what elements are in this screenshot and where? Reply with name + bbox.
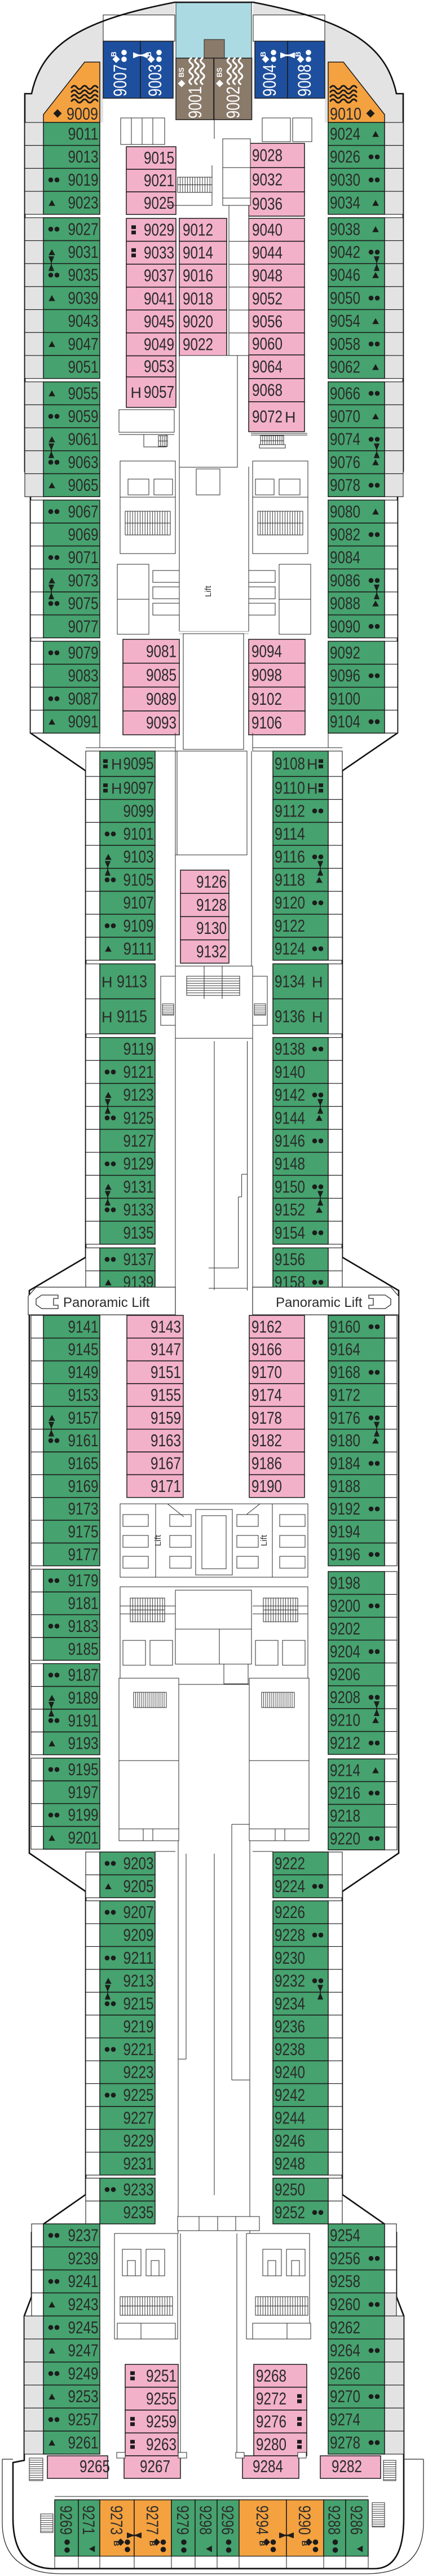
svg-text:9150: 9150 (275, 1177, 305, 1196)
svg-text:9011: 9011 (68, 124, 99, 144)
svg-text:9137: 9137 (123, 1249, 154, 1269)
svg-text:B: B (112, 2540, 121, 2546)
svg-text:9270: 9270 (330, 2386, 360, 2406)
svg-text:9165: 9165 (68, 1454, 99, 1473)
svg-text:9118: 9118 (275, 870, 305, 889)
svg-text:9103: 9103 (123, 847, 154, 867)
svg-text:9260: 9260 (330, 2294, 360, 2314)
svg-text:9161: 9161 (68, 1430, 99, 1450)
svg-text:9095: 9095 (123, 754, 154, 774)
svg-text:9008: 9008 (294, 64, 315, 96)
svg-text:9026: 9026 (330, 147, 360, 166)
svg-text:9098: 9098 (251, 665, 282, 685)
svg-text:9226: 9226 (275, 1902, 305, 1922)
svg-text:9273: 9273 (107, 2505, 126, 2535)
svg-text:9261: 9261 (68, 2433, 99, 2452)
svg-text:9144: 9144 (275, 1108, 305, 1127)
svg-text:9266: 9266 (330, 2363, 360, 2383)
svg-text:9164: 9164 (330, 1340, 360, 1359)
svg-text:9203: 9203 (123, 1853, 154, 1873)
svg-text:9259: 9259 (146, 2411, 177, 2431)
svg-text:9085: 9085 (146, 665, 177, 685)
svg-text:9167: 9167 (151, 1454, 181, 1473)
svg-text:H: H (307, 780, 318, 797)
svg-text:BS: BS (216, 68, 224, 77)
svg-text:9046: 9046 (330, 265, 360, 285)
svg-text:9028: 9028 (252, 146, 283, 165)
svg-text:9253: 9253 (68, 2386, 99, 2406)
svg-text:9047: 9047 (68, 334, 99, 354)
svg-text:9039: 9039 (68, 288, 99, 308)
svg-text:9181: 9181 (68, 1594, 99, 1613)
svg-text:9250: 9250 (275, 2179, 305, 2199)
svg-text:B: B (148, 2540, 157, 2546)
svg-text:9186: 9186 (251, 1454, 282, 1473)
svg-text:9138: 9138 (275, 1039, 305, 1059)
svg-text:9248: 9248 (275, 2153, 305, 2173)
svg-text:9025: 9025 (144, 193, 174, 213)
svg-text:9057: 9057 (144, 382, 174, 402)
svg-text:H: H (102, 1008, 113, 1025)
svg-text:9212: 9212 (330, 1733, 360, 1753)
svg-text:9119: 9119 (123, 1039, 154, 1059)
svg-text:9033: 9033 (144, 243, 174, 262)
svg-text:9207: 9207 (123, 1902, 154, 1922)
svg-text:9179: 9179 (68, 1570, 99, 1590)
svg-text:9113: 9113 (117, 971, 147, 991)
svg-text:9106: 9106 (251, 713, 282, 732)
svg-text:9135: 9135 (123, 1223, 154, 1243)
svg-text:9173: 9173 (68, 1499, 99, 1519)
svg-text:9086: 9086 (330, 571, 360, 590)
svg-text:9279: 9279 (173, 2505, 192, 2535)
svg-text:9239: 9239 (68, 2248, 99, 2268)
svg-text:9280: 9280 (256, 2434, 286, 2454)
svg-text:9035: 9035 (68, 265, 99, 285)
svg-text:9123: 9123 (123, 1085, 154, 1105)
svg-text:9264: 9264 (330, 2341, 360, 2360)
svg-text:9246: 9246 (275, 2131, 305, 2151)
svg-text:9205: 9205 (123, 1876, 154, 1896)
svg-text:9265: 9265 (80, 2456, 110, 2476)
svg-text:9194: 9194 (330, 1522, 360, 1542)
svg-text:9066: 9066 (330, 383, 360, 403)
svg-text:9191: 9191 (68, 1710, 99, 1730)
svg-text:9029: 9029 (144, 220, 174, 240)
svg-text:9232: 9232 (275, 1971, 305, 1990)
svg-text:9154: 9154 (275, 1223, 305, 1243)
svg-text:9171: 9171 (151, 1476, 181, 1496)
svg-text:9068: 9068 (252, 380, 283, 400)
svg-text:9084: 9084 (330, 547, 360, 567)
svg-text:9050: 9050 (330, 288, 360, 308)
svg-text:9214: 9214 (330, 1760, 360, 1780)
svg-text:H: H (285, 409, 296, 426)
svg-text:H: H (312, 1008, 323, 1025)
svg-text:9152: 9152 (275, 1200, 305, 1219)
svg-text:9014: 9014 (183, 243, 213, 262)
svg-text:9002: 9002 (223, 86, 244, 119)
svg-text:9278: 9278 (330, 2433, 360, 2452)
svg-text:9143: 9143 (151, 1316, 181, 1336)
svg-text:9272: 9272 (256, 2389, 286, 2408)
svg-text:9271: 9271 (79, 2505, 98, 2535)
svg-text:9122: 9122 (275, 916, 305, 936)
svg-text:9063: 9063 (68, 452, 99, 472)
svg-text:9096: 9096 (330, 666, 360, 686)
svg-text:9082: 9082 (330, 525, 360, 545)
svg-text:9206: 9206 (330, 1664, 360, 1684)
svg-text:9009: 9009 (67, 104, 98, 124)
svg-text:9081: 9081 (146, 641, 177, 661)
svg-text:9189: 9189 (68, 1688, 99, 1708)
svg-text:Panoramic Lift: Panoramic Lift (276, 1295, 363, 1310)
svg-text:9148: 9148 (275, 1154, 305, 1174)
svg-text:9041: 9041 (144, 288, 174, 308)
svg-text:9219: 9219 (123, 2016, 154, 2036)
svg-text:9142: 9142 (275, 1085, 305, 1105)
svg-text:9071: 9071 (68, 547, 99, 567)
svg-text:9140: 9140 (275, 1062, 305, 1082)
svg-text:9268: 9268 (256, 2366, 286, 2385)
svg-text:9010: 9010 (330, 104, 361, 124)
svg-text:9045: 9045 (144, 311, 174, 331)
svg-text:9049: 9049 (144, 335, 174, 354)
svg-text:9160: 9160 (330, 1316, 360, 1336)
svg-text:9262: 9262 (330, 2318, 360, 2337)
svg-text:9089: 9089 (146, 689, 177, 709)
svg-text:9074: 9074 (330, 429, 360, 449)
svg-text:9218: 9218 (330, 1806, 360, 1825)
svg-text:9136: 9136 (275, 1006, 305, 1026)
svg-text:9257: 9257 (68, 2410, 99, 2429)
svg-text:9070: 9070 (330, 406, 360, 426)
svg-text:9060: 9060 (252, 334, 283, 354)
svg-text:9110: 9110 (275, 778, 305, 798)
svg-text:9061: 9061 (68, 429, 99, 449)
svg-text:9034: 9034 (330, 193, 360, 213)
svg-text:9128: 9128 (196, 895, 227, 915)
svg-text:9198: 9198 (330, 1573, 360, 1592)
svg-text:9251: 9251 (146, 2366, 177, 2385)
svg-text:9015: 9015 (144, 148, 174, 168)
svg-text:Lift: Lift (153, 1534, 163, 1546)
svg-text:9078: 9078 (330, 475, 360, 495)
svg-text:9019: 9019 (68, 170, 99, 190)
svg-text:9067: 9067 (68, 502, 99, 521)
svg-text:9116: 9116 (275, 847, 305, 867)
svg-text:9209: 9209 (123, 1925, 154, 1945)
svg-text:9043: 9043 (68, 311, 99, 331)
svg-text:9296: 9296 (218, 2505, 237, 2535)
svg-text:9235: 9235 (123, 2202, 154, 2222)
svg-text:H: H (111, 756, 122, 773)
svg-text:Panoramic Lift: Panoramic Lift (63, 1295, 150, 1310)
svg-text:9228: 9228 (275, 1925, 305, 1945)
svg-text:9244: 9244 (275, 2108, 305, 2127)
svg-text:9230: 9230 (275, 1948, 305, 1968)
svg-text:9054: 9054 (330, 311, 360, 331)
svg-text:9044: 9044 (252, 243, 283, 262)
svg-text:9126: 9126 (196, 872, 227, 892)
svg-text:9169: 9169 (68, 1476, 99, 1496)
svg-text:9134: 9134 (275, 971, 305, 991)
svg-text:9263: 9263 (146, 2434, 177, 2454)
svg-text:9120: 9120 (275, 893, 305, 912)
svg-text:9004: 9004 (259, 64, 280, 96)
svg-text:9245: 9245 (68, 2318, 99, 2337)
svg-text:9147: 9147 (151, 1340, 181, 1359)
svg-text:9175: 9175 (68, 1522, 99, 1542)
svg-text:9083: 9083 (68, 666, 99, 686)
svg-text:9274: 9274 (330, 2410, 360, 2429)
svg-text:9132: 9132 (196, 941, 227, 961)
svg-text:9001: 9001 (185, 86, 205, 119)
svg-text:9076: 9076 (330, 452, 360, 472)
svg-text:9193: 9193 (68, 1734, 99, 1753)
svg-text:9229: 9229 (123, 2131, 154, 2151)
svg-text:9065: 9065 (68, 475, 99, 495)
svg-text:9027: 9027 (68, 219, 99, 239)
svg-text:9111: 9111 (123, 939, 154, 959)
svg-text:9062: 9062 (330, 357, 360, 377)
svg-text:9170: 9170 (251, 1362, 282, 1382)
svg-text:9225: 9225 (123, 2085, 154, 2105)
svg-text:9107: 9107 (123, 893, 154, 912)
svg-text:9030: 9030 (330, 170, 360, 190)
svg-text:9156: 9156 (275, 1249, 305, 1269)
svg-text:9238: 9238 (275, 2039, 305, 2059)
svg-text:9258: 9258 (330, 2271, 360, 2291)
svg-text:9121: 9121 (123, 1062, 154, 1082)
svg-text:9176: 9176 (330, 1408, 360, 1428)
svg-text:9223: 9223 (123, 2062, 154, 2082)
svg-text:9077: 9077 (68, 616, 99, 636)
svg-text:9141: 9141 (68, 1316, 99, 1336)
svg-text:9105: 9105 (123, 870, 154, 889)
svg-text:9080: 9080 (330, 502, 360, 521)
svg-text:9195: 9195 (68, 1759, 99, 1779)
svg-text:BS: BS (178, 68, 186, 77)
svg-text:9282: 9282 (332, 2456, 362, 2476)
svg-text:9182: 9182 (251, 1430, 282, 1450)
svg-text:9163: 9163 (151, 1430, 181, 1450)
svg-text:9162: 9162 (251, 1316, 282, 1336)
svg-text:9227: 9227 (123, 2108, 154, 2127)
svg-text:9208: 9208 (330, 1687, 360, 1707)
svg-text:9020: 9020 (183, 311, 213, 331)
svg-text:9069: 9069 (68, 525, 99, 545)
svg-text:9231: 9231 (123, 2153, 154, 2173)
svg-text:9233: 9233 (123, 2179, 154, 2199)
svg-text:H: H (307, 756, 318, 773)
svg-text:9153: 9153 (68, 1385, 99, 1405)
svg-text:9151: 9151 (151, 1362, 181, 1382)
svg-text:9288: 9288 (325, 2505, 343, 2535)
svg-text:9224: 9224 (275, 1876, 305, 1896)
svg-text:B: B (301, 2540, 310, 2546)
svg-text:9286: 9286 (347, 2505, 365, 2535)
svg-text:B: B (258, 2540, 267, 2546)
svg-text:9003: 9003 (145, 64, 165, 96)
svg-text:9072: 9072 (252, 407, 283, 427)
svg-text:9099: 9099 (123, 801, 154, 820)
svg-text:H: H (312, 973, 323, 990)
svg-text:9088: 9088 (330, 594, 360, 613)
svg-text:9197: 9197 (68, 1782, 99, 1802)
svg-text:9155: 9155 (151, 1385, 181, 1405)
svg-text:9192: 9192 (330, 1499, 360, 1519)
svg-text:9249: 9249 (68, 2363, 99, 2383)
svg-text:9201: 9201 (68, 1828, 99, 1847)
svg-text:9051: 9051 (68, 357, 99, 377)
svg-text:9196: 9196 (330, 1544, 360, 1564)
svg-text:9037: 9037 (144, 266, 174, 286)
svg-text:9023: 9023 (68, 193, 99, 213)
svg-text:9114: 9114 (275, 824, 305, 844)
svg-text:9079: 9079 (68, 643, 99, 662)
svg-text:9183: 9183 (68, 1616, 99, 1636)
svg-text:9093: 9093 (146, 713, 177, 732)
svg-text:9048: 9048 (252, 266, 283, 286)
svg-text:9012: 9012 (183, 220, 213, 240)
svg-text:9221: 9221 (123, 2039, 154, 2059)
svg-text:9202: 9202 (330, 1618, 360, 1638)
svg-text:9254: 9254 (330, 2226, 360, 2245)
svg-text:H: H (131, 384, 142, 401)
svg-text:9133: 9133 (123, 1200, 154, 1219)
svg-text:9059: 9059 (68, 406, 99, 426)
svg-text:9130: 9130 (196, 918, 227, 938)
svg-text:9131: 9131 (123, 1177, 154, 1196)
svg-text:9241: 9241 (68, 2271, 99, 2291)
svg-text:9092: 9092 (330, 643, 360, 662)
svg-text:9276: 9276 (256, 2411, 286, 2431)
svg-text:9247: 9247 (68, 2341, 99, 2360)
svg-text:9042: 9042 (330, 242, 360, 262)
svg-text:9166: 9166 (251, 1340, 282, 1359)
svg-text:9236: 9236 (275, 2016, 305, 2036)
svg-text:9178: 9178 (251, 1408, 282, 1428)
svg-text:9146: 9146 (275, 1131, 305, 1151)
svg-text:9032: 9032 (252, 170, 283, 190)
svg-text:9149: 9149 (68, 1362, 99, 1382)
svg-text:9055: 9055 (68, 383, 99, 403)
svg-text:9040: 9040 (252, 220, 283, 240)
svg-text:9112: 9112 (275, 801, 305, 820)
svg-text:9109: 9109 (123, 916, 154, 936)
svg-text:9220: 9220 (330, 1828, 360, 1848)
svg-text:H: H (111, 780, 122, 797)
svg-text:9290: 9290 (295, 2505, 314, 2535)
svg-text:9210: 9210 (330, 1710, 360, 1730)
svg-text:9124: 9124 (275, 939, 305, 959)
svg-text:9064: 9064 (252, 357, 283, 376)
svg-text:9052: 9052 (252, 288, 283, 308)
svg-text:9252: 9252 (275, 2202, 305, 2222)
svg-text:9294: 9294 (253, 2505, 271, 2535)
svg-text:9102: 9102 (251, 689, 282, 709)
svg-text:9188: 9188 (330, 1476, 360, 1496)
svg-text:9075: 9075 (68, 594, 99, 613)
svg-text:9200: 9200 (330, 1596, 360, 1616)
svg-text:9125: 9125 (123, 1108, 154, 1127)
svg-text:9087: 9087 (68, 688, 99, 708)
svg-text:9021: 9021 (144, 170, 174, 190)
svg-text:9031: 9031 (68, 242, 99, 262)
svg-text:9129: 9129 (123, 1154, 154, 1174)
svg-text:9091: 9091 (68, 712, 99, 731)
svg-text:9222: 9222 (275, 1853, 305, 1873)
svg-text:9159: 9159 (151, 1408, 181, 1428)
svg-text:9216: 9216 (330, 1783, 360, 1803)
svg-text:9090: 9090 (330, 616, 360, 636)
svg-text:9174: 9174 (251, 1385, 282, 1405)
svg-text:9172: 9172 (330, 1385, 360, 1405)
svg-text:9022: 9022 (183, 335, 213, 354)
svg-text:9024: 9024 (330, 124, 360, 144)
svg-text:9097: 9097 (123, 778, 154, 798)
svg-text:9056: 9056 (252, 311, 283, 331)
svg-text:9284: 9284 (253, 2456, 283, 2476)
svg-text:9018: 9018 (183, 288, 213, 308)
svg-text:9058: 9058 (330, 334, 360, 354)
svg-text:9180: 9180 (330, 1430, 360, 1450)
svg-text:9007: 9007 (110, 64, 130, 96)
svg-text:9234: 9234 (275, 1994, 305, 2013)
svg-text:9073: 9073 (68, 571, 99, 590)
svg-text:9277: 9277 (143, 2505, 161, 2535)
svg-text:9053: 9053 (144, 357, 174, 376)
svg-text:9036: 9036 (252, 194, 283, 214)
svg-text:9108: 9108 (275, 754, 305, 774)
svg-text:9237: 9237 (68, 2226, 99, 2245)
svg-text:9157: 9157 (68, 1408, 99, 1428)
svg-text:9256: 9256 (330, 2248, 360, 2268)
svg-text:9298: 9298 (196, 2505, 215, 2535)
svg-text:H: H (102, 973, 113, 990)
svg-text:9204: 9204 (330, 1642, 360, 1661)
svg-text:9267: 9267 (140, 2456, 170, 2476)
svg-text:9213: 9213 (123, 1971, 154, 1990)
svg-text:9215: 9215 (123, 1994, 154, 2013)
svg-text:9115: 9115 (117, 1006, 147, 1026)
svg-text:Lift: Lift (259, 1534, 269, 1546)
svg-text:9038: 9038 (330, 219, 360, 239)
svg-text:9168: 9168 (330, 1362, 360, 1382)
svg-text:9255: 9255 (146, 2389, 177, 2408)
svg-text:9100: 9100 (330, 688, 360, 708)
svg-text:9240: 9240 (275, 2062, 305, 2082)
svg-text:9184: 9184 (330, 1454, 360, 1473)
svg-text:9190: 9190 (251, 1476, 282, 1496)
svg-text:9269: 9269 (56, 2505, 75, 2535)
svg-text:9211: 9211 (123, 1948, 154, 1968)
svg-text:9013: 9013 (68, 147, 99, 166)
svg-text:9016: 9016 (183, 266, 213, 286)
svg-text:9243: 9243 (68, 2294, 99, 2314)
svg-text:9199: 9199 (68, 1805, 99, 1825)
svg-text:9145: 9145 (68, 1340, 99, 1359)
svg-text:9094: 9094 (251, 641, 282, 661)
svg-text:9104: 9104 (330, 712, 360, 731)
svg-text:9185: 9185 (68, 1639, 99, 1658)
svg-text:9101: 9101 (123, 824, 154, 844)
svg-text:9127: 9127 (123, 1131, 154, 1151)
svg-text:9177: 9177 (68, 1544, 99, 1564)
svg-text:Lift: Lift (204, 585, 213, 597)
svg-text:9242: 9242 (275, 2085, 305, 2105)
